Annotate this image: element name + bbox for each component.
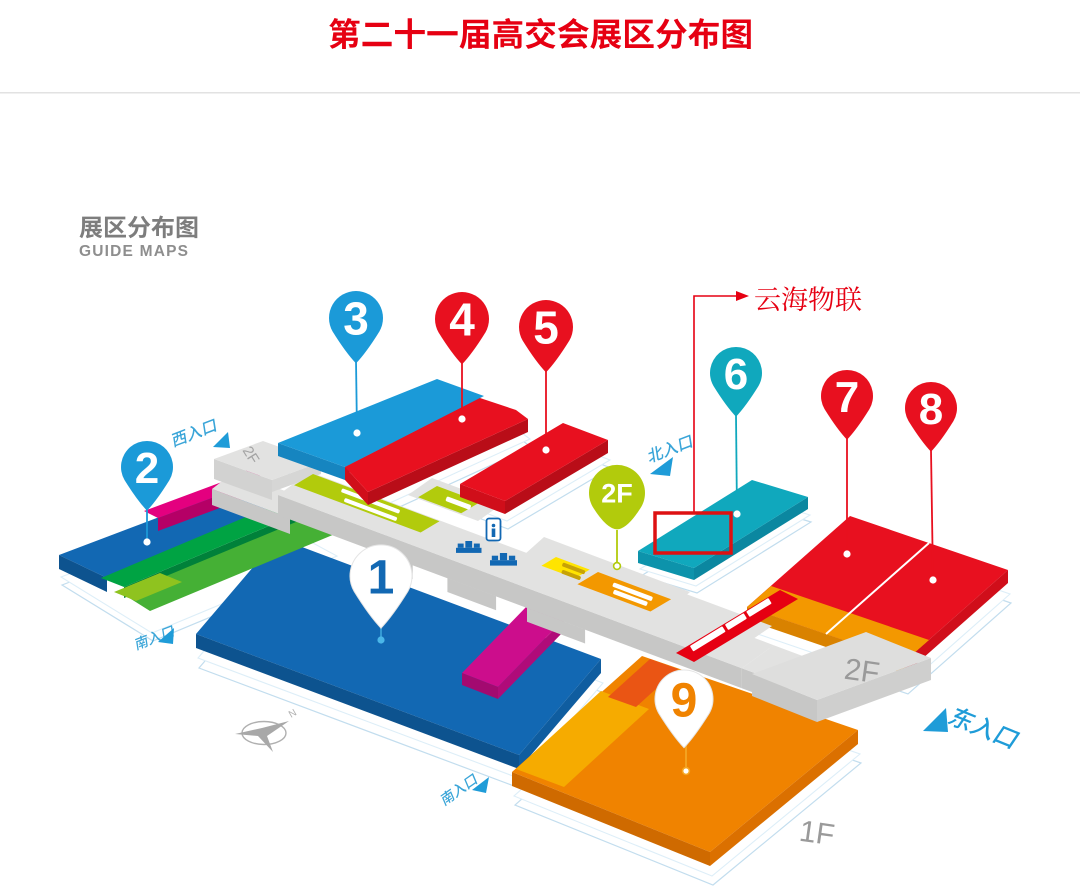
svg-text:2F: 2F [842, 653, 881, 691]
svg-text:1F: 1F [797, 815, 836, 853]
svg-text:6: 6 [724, 350, 748, 399]
svg-text:1: 1 [368, 551, 395, 604]
svg-text:7: 7 [835, 373, 859, 422]
svg-text:3: 3 [343, 293, 369, 345]
svg-text:GUIDE MAPS: GUIDE MAPS [79, 243, 189, 260]
svg-text:5: 5 [533, 302, 559, 354]
svg-text:4: 4 [449, 294, 475, 346]
svg-text:2F: 2F [601, 479, 633, 509]
svg-text:9: 9 [671, 674, 698, 727]
svg-text:2: 2 [135, 444, 159, 493]
svg-text:8: 8 [919, 385, 943, 434]
